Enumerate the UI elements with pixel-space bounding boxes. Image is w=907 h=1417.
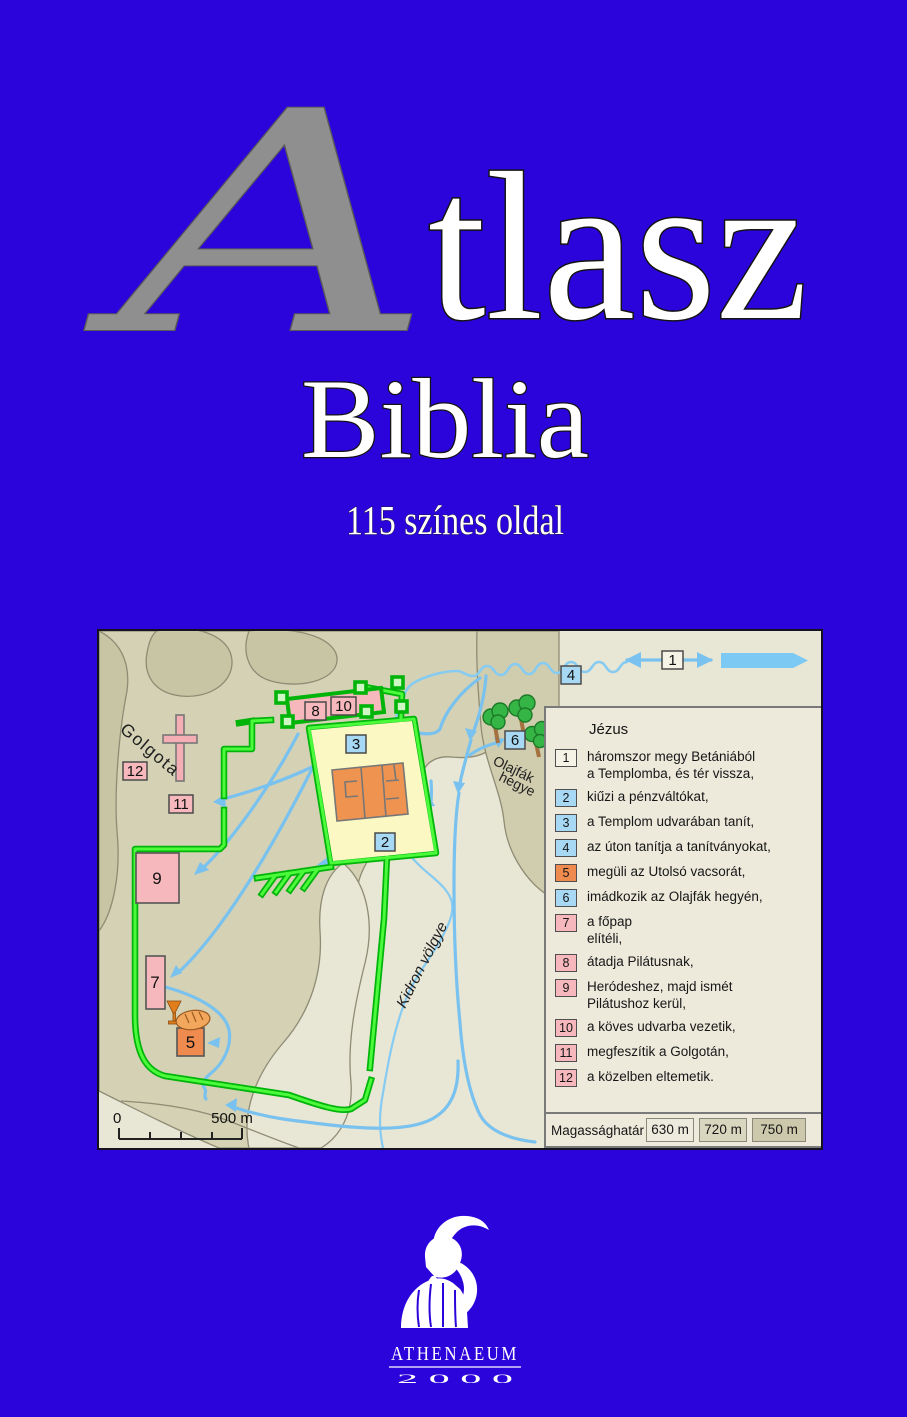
legend-item-1: 1háromszor megy Betániából a Templomba, … — [555, 749, 817, 782]
legend-num-2: 2 — [555, 789, 577, 807]
legend-item-3: 3a Templom udvarában tanít, — [555, 814, 817, 832]
legend-item-4: 4az úton tanítja a tanítványokat, — [555, 839, 817, 857]
marker-5: 5 — [186, 1033, 195, 1052]
marker-12: 12 — [123, 762, 147, 780]
legend-num-7: 7 — [555, 914, 577, 932]
temple-building — [332, 763, 408, 821]
legend-text-3: a Templom udvarában tanít, — [587, 814, 754, 832]
subtitle: Biblia — [301, 357, 589, 482]
svg-text:10: 10 — [335, 698, 352, 715]
legend-num-8: 8 — [555, 954, 577, 972]
svg-text:6: 6 — [511, 732, 519, 749]
drape-body — [401, 1278, 468, 1328]
legend-text-5: megüli az Utolsó vacsorát, — [587, 864, 745, 882]
legend-title: Jézus — [589, 721, 821, 738]
legend-text-9: Heródeshez, majd ismét Pilátushoz kerül, — [587, 979, 733, 1012]
svg-text:2: 2 — [381, 834, 389, 851]
legend-num-1: 1 — [555, 749, 577, 767]
altitude-750: 750 m — [752, 1118, 806, 1142]
jerusalem-map: Golgota Olajfák hegye Kidron völgye 1 4 … — [97, 629, 823, 1150]
svg-text:8: 8 — [311, 703, 319, 720]
svg-text:12: 12 — [127, 763, 144, 780]
altitude-630: 630 m — [646, 1118, 694, 1142]
legend-text-7: a főpap elítéli, — [587, 914, 632, 947]
legend-item-9: 9Heródeshez, majd ismét Pilátushoz kerül… — [555, 979, 817, 1012]
legend-num-12: 12 — [555, 1069, 577, 1087]
marker-11: 11 — [169, 795, 193, 813]
scale-start-label: 0 — [113, 1110, 121, 1127]
marker-7: 7 — [150, 973, 159, 992]
legend-num-11: 11 — [555, 1044, 577, 1062]
legend-item-6: 6imádkozik az Olajfák hegyén, — [555, 889, 817, 907]
athena-figure — [401, 1216, 489, 1328]
legend-items: 1háromszor megy Betániából a Templomba, … — [546, 749, 821, 1087]
tagline: 115 színes oldal — [346, 497, 564, 543]
legend-item-7: 7a főpap elítéli, — [555, 914, 817, 947]
altitude-label: Magassághatár — [551, 1123, 644, 1138]
legend-item-5: 5megüli az Utolsó vacsorát, — [555, 864, 817, 882]
marker-9: 9 — [152, 869, 161, 888]
legend-text-2: kiűzi a pénzváltókat, — [587, 789, 709, 807]
helmet-head — [425, 1236, 462, 1278]
marker-10: 10 — [331, 697, 356, 715]
legend-num-6: 6 — [555, 889, 577, 907]
legend-item-10: 10a köves udvarba vezetik, — [555, 1019, 817, 1037]
altitude-legend: Magassághatár 630 m 720 m 750 m — [546, 1112, 821, 1146]
legend-num-3: 3 — [555, 814, 577, 832]
title-block: A tlasz Biblia 115 színes oldal — [0, 0, 907, 600]
title-rest: tlasz — [428, 129, 808, 364]
legend-num-4: 4 — [555, 839, 577, 857]
legend-item-12: 12a közelben eltemetik. — [555, 1069, 817, 1087]
scale-end-label: 500 m — [211, 1110, 253, 1127]
title-initial: A — [84, 47, 433, 402]
legend-text-4: az úton tanítja a tanítványokat, — [587, 839, 771, 857]
svg-text:4: 4 — [567, 667, 575, 684]
legend-text-11: megfeszítik a Golgotán, — [587, 1044, 729, 1062]
betania-fat-arrow — [721, 653, 808, 668]
legend-text-6: imádkozik az Olajfák hegyén, — [587, 889, 763, 907]
marker-1: 1 — [662, 651, 683, 669]
legend-num-10: 10 — [555, 1019, 577, 1037]
altitude-720: 720 m — [699, 1118, 747, 1142]
legend-num-9: 9 — [555, 979, 577, 997]
legend-item-2: 2kiűzi a pénzváltókat, — [555, 789, 817, 807]
publisher-year: 2 0 0 0 — [397, 1372, 513, 1386]
marker-6: 6 — [505, 731, 525, 749]
legend-item-8: 8átadja Pilátusnak, — [555, 954, 817, 972]
legend-text-10: a köves udvarba vezetik, — [587, 1019, 736, 1037]
publisher-logo: ATHENAEUM 2 0 0 0 — [375, 1210, 535, 1390]
book-cover: A tlasz Biblia 115 színes oldal — [0, 0, 907, 1417]
legend-text-12: a közelben eltemetik. — [587, 1069, 714, 1087]
map-legend: Jézus 1háromszor megy Betániából a Templ… — [544, 706, 821, 1148]
svg-text:3: 3 — [352, 736, 360, 753]
svg-text:11: 11 — [173, 796, 189, 813]
legend-num-5: 5 — [555, 864, 577, 882]
publisher-name: ATHENAEUM — [391, 1343, 519, 1365]
legend-item-11: 11megfeszítik a Golgotán, — [555, 1044, 817, 1062]
legend-text-1: háromszor megy Betániából a Templomba, é… — [587, 749, 755, 782]
svg-text:1: 1 — [668, 652, 676, 669]
marker-4: 4 — [561, 666, 581, 684]
marker-3: 3 — [346, 735, 366, 753]
legend-text-8: átadja Pilátusnak, — [587, 954, 694, 972]
marker-8: 8 — [305, 702, 326, 720]
marker-2: 2 — [375, 833, 395, 851]
terrain-750m-blob-b — [146, 631, 232, 696]
